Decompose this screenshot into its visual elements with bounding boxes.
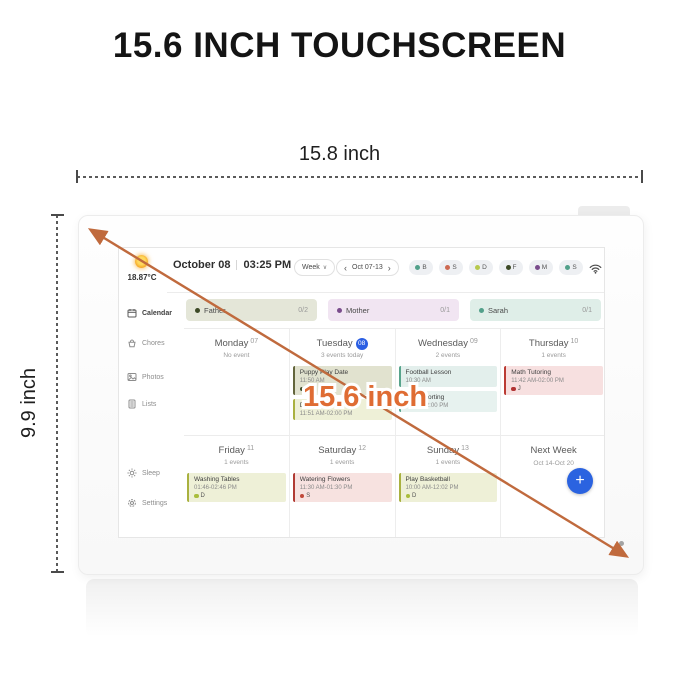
add-event-button[interactable] bbox=[567, 468, 593, 494]
day-events-count: No event bbox=[187, 352, 286, 359]
avatar[interactable]: S bbox=[559, 260, 583, 275]
event-card[interactable]: Football Lesson 10:30 AM bbox=[399, 366, 498, 387]
sidebar-item-lists[interactable]: Lists bbox=[127, 398, 156, 410]
datetime-divider bbox=[236, 260, 237, 270]
assignee-dot bbox=[511, 387, 516, 392]
event-card[interactable]: Trash Sorting 01:00-02:00 PM bbox=[399, 391, 498, 412]
avatar-dot bbox=[415, 265, 420, 270]
avatar-dot bbox=[565, 265, 570, 270]
assignee-dot bbox=[406, 494, 411, 499]
day-column-friday[interactable]: Friday11 1 events Washing Tables 01:46-0… bbox=[184, 436, 290, 538]
member-dot bbox=[195, 308, 200, 313]
member-task-count: 0/2 bbox=[298, 307, 308, 314]
event-card[interactable]: Drying Laundry 11:51 AM-02:00 PM bbox=[293, 399, 392, 420]
member-dot bbox=[479, 308, 484, 313]
avatar[interactable]: S bbox=[439, 260, 463, 275]
week-row-current: Monday07 No event Tuesday08 3 events tod… bbox=[184, 329, 605, 435]
day-events-count: 1 events bbox=[187, 459, 286, 466]
avatar[interactable]: B bbox=[409, 260, 433, 275]
sidebar-item-calendar[interactable]: Calendar bbox=[127, 307, 172, 319]
family-avatars: B S D F M S bbox=[409, 260, 583, 275]
temperature: 18.87°C bbox=[119, 273, 165, 282]
header-divider bbox=[167, 292, 604, 293]
member-pill-sarah[interactable]: Sarah 0/1 bbox=[470, 299, 601, 321]
day-column-thursday[interactable]: Thursday10 1 events Math Tutoring 11:42 … bbox=[501, 329, 605, 435]
dimension-tick bbox=[51, 571, 64, 573]
event-card[interactable]: Play Basketball 10:00 AM-12:02 PM D bbox=[399, 473, 498, 502]
current-date: October 08 bbox=[173, 259, 230, 271]
height-dimension-label: 9.9 inch bbox=[18, 348, 40, 458]
avatar[interactable]: F bbox=[499, 260, 523, 275]
assignee-dot bbox=[300, 387, 305, 392]
week-range-navigator: Oct 07-13 bbox=[336, 259, 399, 276]
day-events-count: 1 events bbox=[504, 352, 603, 359]
dimension-tick bbox=[76, 170, 78, 183]
sleep-icon bbox=[127, 468, 137, 478]
height-dimension-line bbox=[56, 215, 58, 573]
week-grid: Monday07 No event Tuesday08 3 events tod… bbox=[184, 328, 605, 538]
width-dimension-line bbox=[77, 176, 642, 178]
camera-dot bbox=[619, 541, 624, 546]
calendar-screen: 18.87°C October 08 03:25 PM Week Oct 07-… bbox=[118, 247, 605, 538]
current-time: 03:25 PM bbox=[243, 259, 291, 271]
chevron-right-icon[interactable] bbox=[388, 263, 391, 273]
sidebar-item-photos[interactable]: Photos bbox=[127, 371, 164, 383]
page-title: 15.6 INCH TOUCHSCREEN bbox=[0, 26, 679, 66]
assignee-dot bbox=[194, 494, 199, 499]
day-column-wednesday[interactable]: Wednesday09 2 events Football Lesson 10:… bbox=[396, 329, 502, 435]
sidebar-item-chores[interactable]: Chores bbox=[127, 337, 165, 349]
weather-sun-icon bbox=[135, 255, 148, 268]
device-reflection bbox=[86, 579, 638, 637]
member-pill-father[interactable]: Father 0/2 bbox=[186, 299, 317, 321]
member-task-count: 0/1 bbox=[582, 307, 592, 314]
wifi-icon bbox=[589, 261, 602, 279]
dimension-tick bbox=[51, 214, 64, 216]
day-events-count: 1 events bbox=[293, 459, 392, 466]
chevron-down-icon bbox=[323, 264, 327, 271]
sidebar-item-settings[interactable]: Settings bbox=[127, 497, 167, 509]
avatar[interactable]: M bbox=[529, 260, 553, 275]
avatar-dot bbox=[475, 265, 480, 270]
event-card[interactable]: Watering Flowers 11:30 AM-01:30 PM S bbox=[293, 473, 392, 502]
member-pill-mother[interactable]: Mother 0/1 bbox=[328, 299, 459, 321]
product-annotation-page: 15.6 INCH TOUCHSCREEN 15.8 inch 9.9 inch… bbox=[0, 0, 679, 679]
day-column-monday[interactable]: Monday07 No event bbox=[184, 329, 290, 435]
chores-icon bbox=[127, 338, 137, 348]
calendar-icon bbox=[127, 308, 137, 318]
event-card[interactable]: Puppy Play Date 11:50 AM F bbox=[293, 366, 392, 395]
week-row-weekend: Friday11 1 events Washing Tables 01:46-0… bbox=[184, 435, 605, 538]
day-events-count: 1 events bbox=[399, 459, 498, 466]
member-summary-row: Father 0/2 Mother 0/1 Sarah 0/1 bbox=[186, 299, 601, 321]
member-dot bbox=[337, 308, 342, 313]
week-range-label: Oct 07-13 bbox=[352, 264, 383, 271]
chevron-left-icon[interactable] bbox=[344, 263, 347, 273]
view-selector-dropdown[interactable]: Week bbox=[294, 259, 335, 276]
day-column-tuesday[interactable]: Tuesday08 3 events today Puppy Play Date… bbox=[290, 329, 396, 435]
day-column-saturday[interactable]: Saturday12 1 events Watering Flowers 11:… bbox=[290, 436, 396, 538]
event-card[interactable]: Washing Tables 01:46-02:46 PM D bbox=[187, 473, 286, 502]
avatar-dot bbox=[535, 265, 540, 270]
next-week-range: Oct 14-Oct 20 bbox=[504, 460, 603, 467]
width-dimension-label: 15.8 inch bbox=[0, 143, 679, 166]
avatar-dot bbox=[445, 265, 450, 270]
assignee-dot bbox=[300, 494, 305, 499]
day-events-count: 3 events today bbox=[293, 352, 392, 359]
avatar[interactable]: D bbox=[469, 260, 493, 275]
photos-icon bbox=[127, 372, 137, 382]
settings-icon bbox=[127, 498, 137, 508]
sidebar-item-sleep[interactable]: Sleep bbox=[127, 467, 160, 479]
day-column-sunday[interactable]: Sunday13 1 events Play Basketball 10:00 … bbox=[396, 436, 502, 538]
lists-icon bbox=[127, 399, 137, 409]
header-datetime: October 08 03:25 PM bbox=[173, 259, 291, 271]
avatar-dot bbox=[506, 265, 511, 270]
member-task-count: 0/1 bbox=[440, 307, 450, 314]
day-events-count: 2 events bbox=[399, 352, 498, 359]
today-badge: 08 bbox=[356, 338, 368, 350]
view-selector-value: Week bbox=[302, 264, 320, 271]
next-week-column[interactable]: Next Week Oct 14-Oct 20 bbox=[501, 436, 605, 538]
dimension-tick bbox=[641, 170, 643, 183]
event-card[interactable]: Math Tutoring 11:42 AM-02:00 PM J bbox=[504, 366, 603, 395]
